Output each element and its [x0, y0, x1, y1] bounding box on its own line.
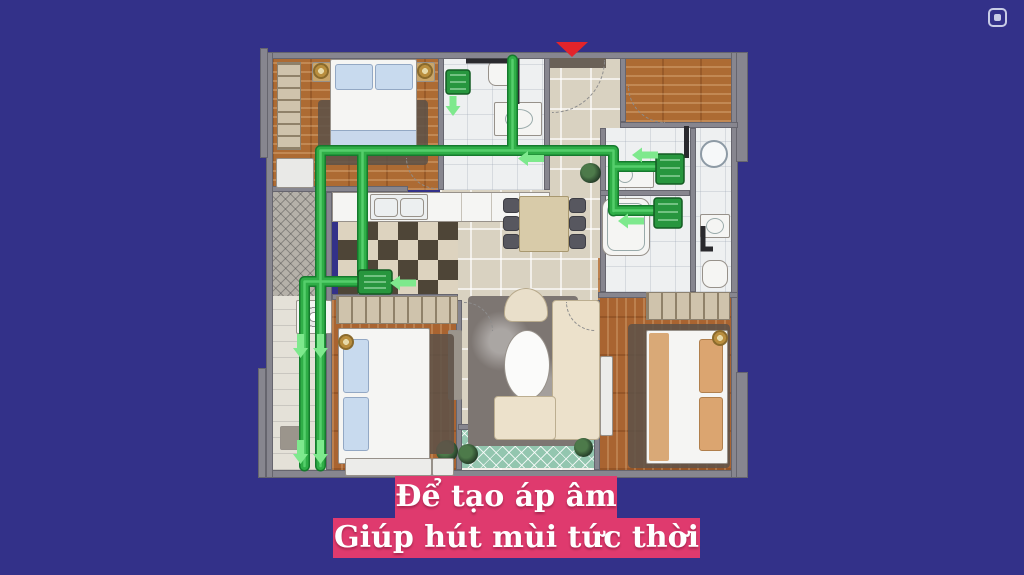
ventilation-duct-network: [260, 42, 752, 492]
apartment-floor-plan: [260, 42, 752, 492]
fan-bathB: [654, 198, 682, 228]
caption-line-2: Giúp hút mùi tức thời: [333, 518, 700, 558]
slide-background: Để tạo áp âm Giúp hút mùi tức thời: [0, 0, 1024, 575]
picture-in-picture-icon[interactable]: [988, 8, 1007, 27]
caption-line-2-text: Giúp hút mùi tức thời: [334, 523, 699, 553]
caption-line-1-text: Để tạo áp âm: [395, 482, 617, 512]
fan-bathA: [656, 154, 684, 184]
black-duct-bathB: [703, 226, 713, 249]
caption-line-1: Để tạo áp âm: [395, 476, 617, 518]
